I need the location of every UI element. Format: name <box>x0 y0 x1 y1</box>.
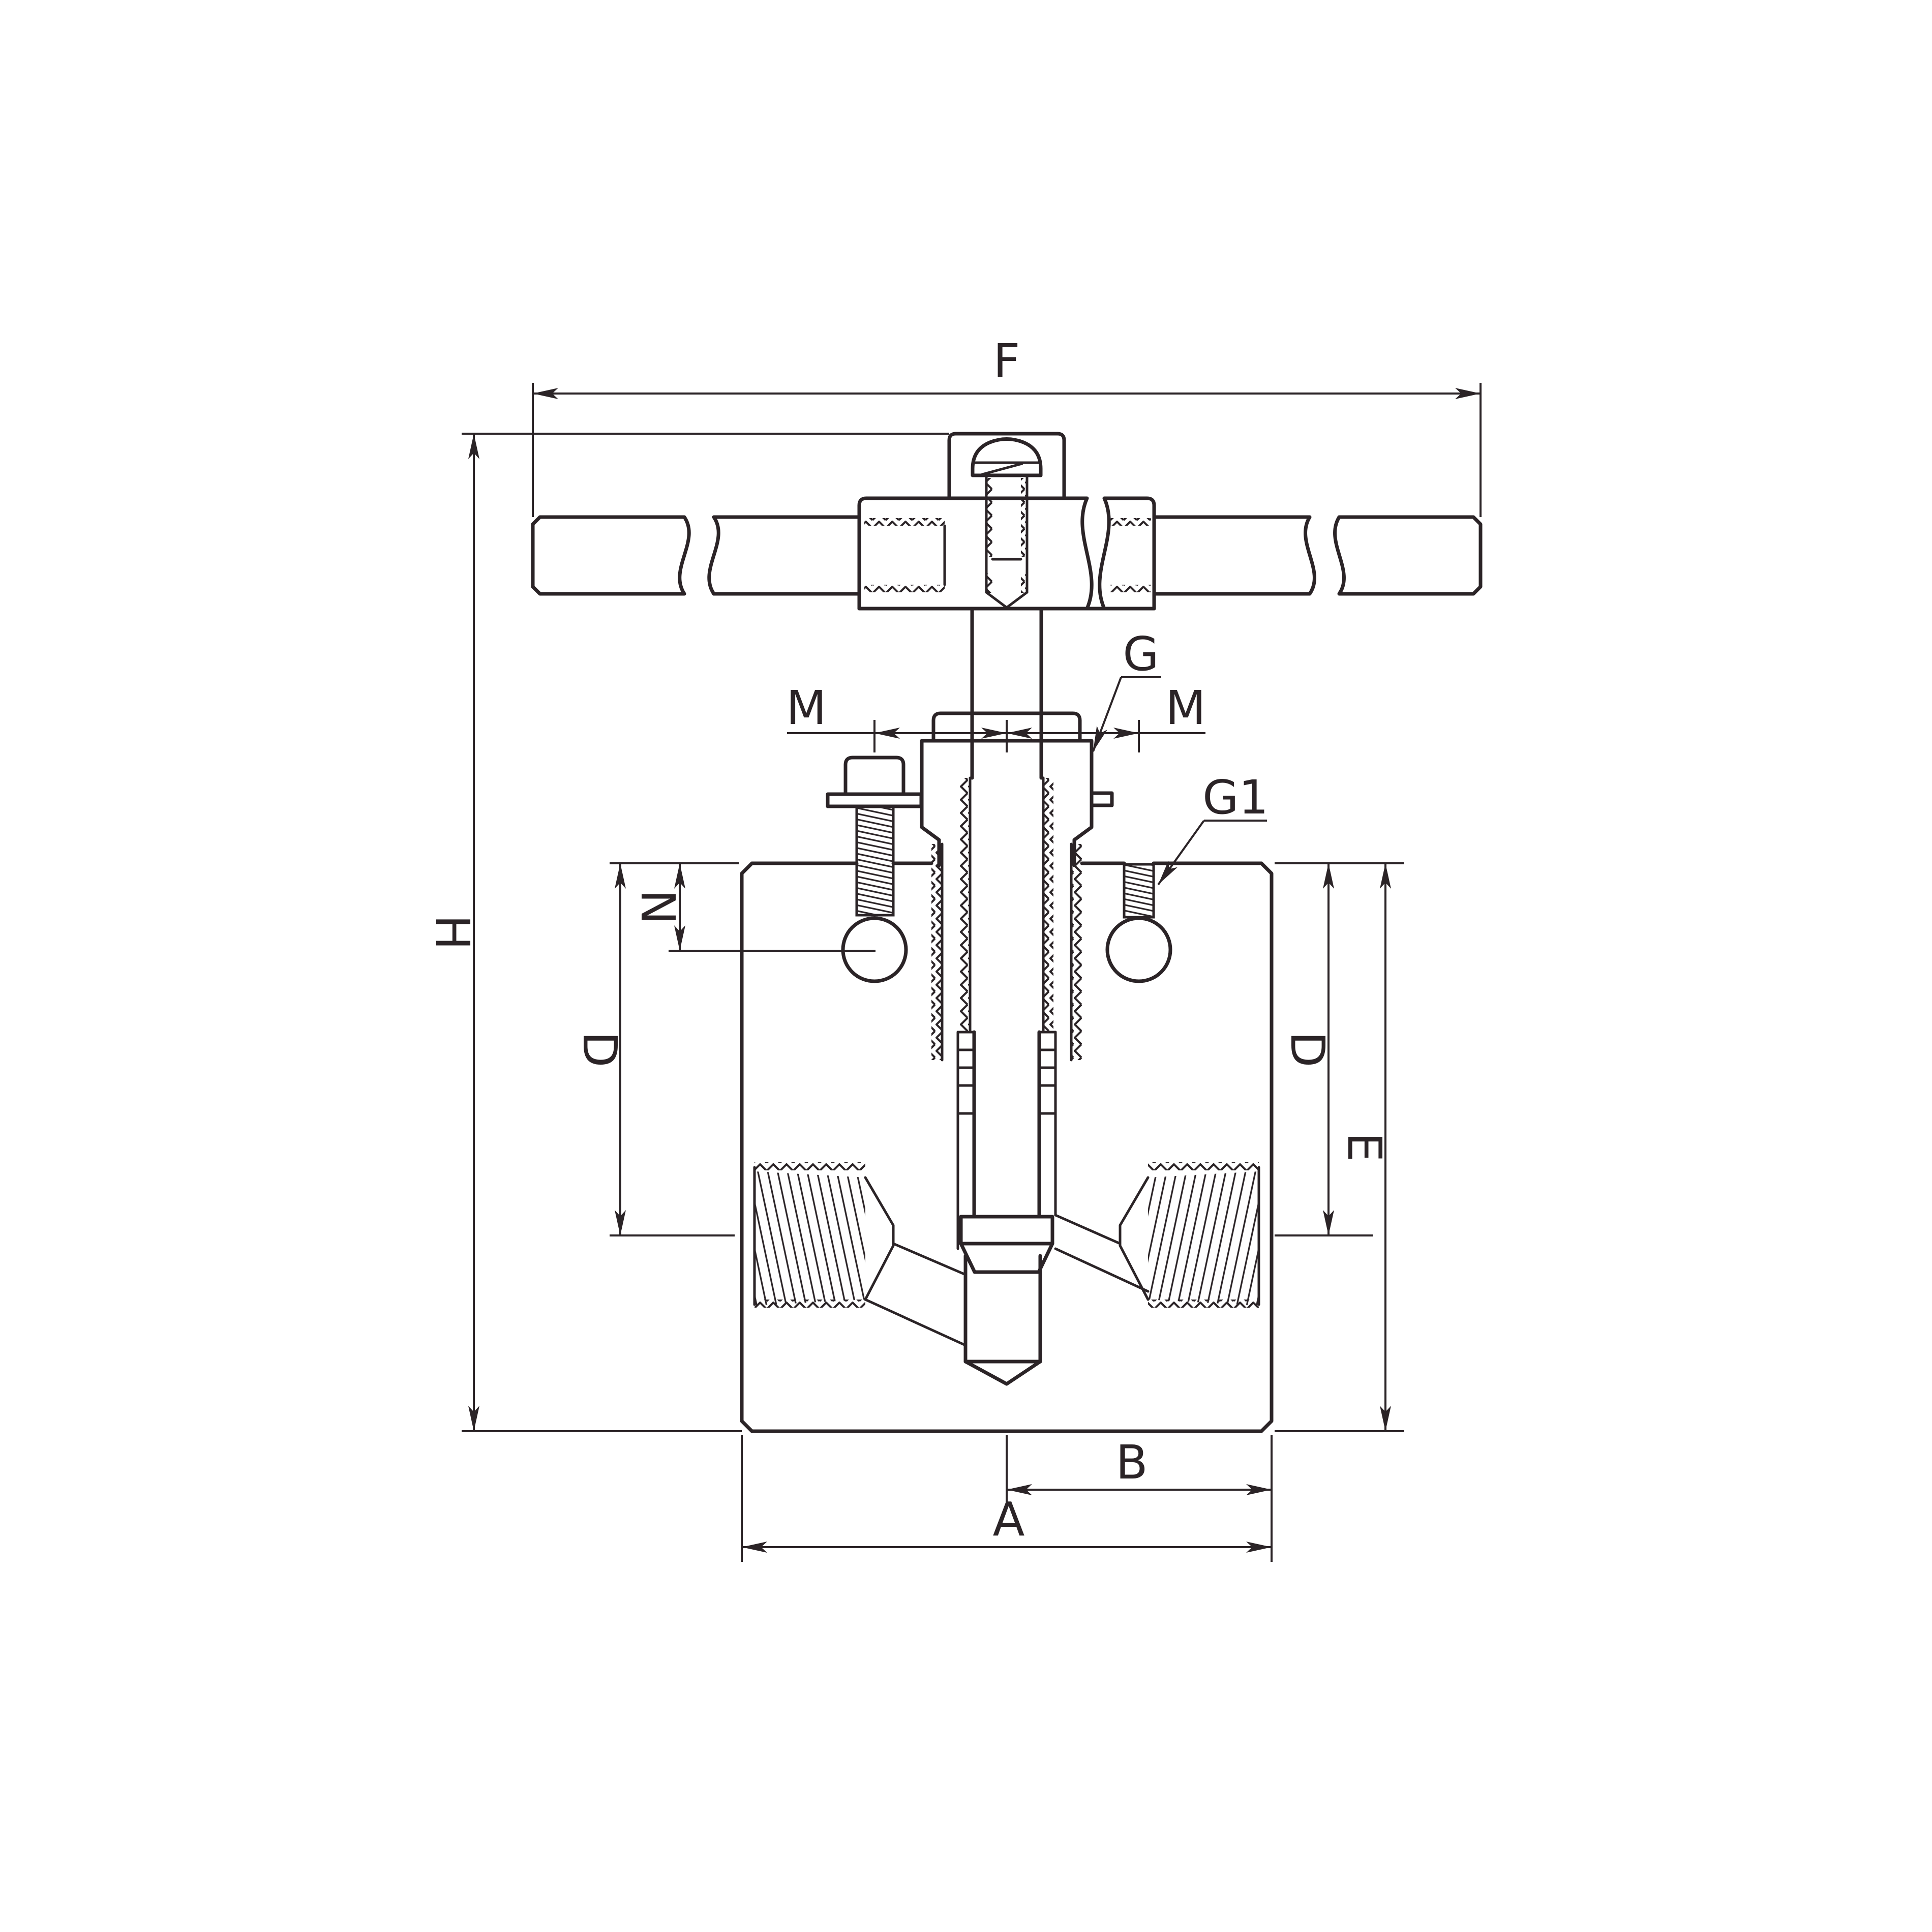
needle-assembly <box>961 1217 1052 1384</box>
passage-left-lower <box>865 1300 965 1345</box>
bolt-head <box>846 758 903 794</box>
port-thread-left <box>754 1162 893 1308</box>
handle-left-arm <box>533 517 689 594</box>
bonnet-thread-left <box>931 844 942 1060</box>
screw-thread-left-2 <box>985 573 992 593</box>
stem-thread-right <box>1043 778 1053 1032</box>
port-crest-top <box>754 1162 865 1170</box>
bonnet-thread-right <box>1071 844 1082 1060</box>
dim-label-m-left: M <box>786 681 826 735</box>
handle-hub-top <box>949 434 1064 498</box>
valve-body <box>742 863 1272 1431</box>
needle-tip <box>965 1362 1040 1384</box>
mount-bolt-left <box>828 758 921 981</box>
needle-valve-technical-drawing: F H M M G G1 N D D <box>0 0 1932 1932</box>
g1-leader <box>1158 821 1204 885</box>
handle-right-arm-inner <box>1154 517 1314 594</box>
bolt-washer <box>828 794 921 806</box>
port-thread-right <box>1120 1162 1259 1308</box>
bolt-shank-threads <box>857 806 893 915</box>
passage-right-upper <box>1055 1215 1120 1244</box>
stud-threads <box>1124 864 1154 917</box>
dim-label-d-left: D <box>572 1032 627 1068</box>
screw-point <box>986 592 1027 608</box>
dim-label-a: A <box>993 1492 1025 1547</box>
screw-thread-right <box>1021 478 1028 557</box>
handle-left-arm-inner <box>709 517 859 594</box>
bonnet-hex <box>922 741 1092 865</box>
stem-thread-left <box>960 778 970 1032</box>
valve-drawing-svg: F H M M G G1 N D D <box>0 0 1932 1932</box>
weep-ball-right <box>1107 918 1170 981</box>
screw-washer-slash <box>982 464 1022 474</box>
stem-bonnet-assembly <box>922 609 1112 1249</box>
body-outline <box>742 863 1272 1431</box>
arm-thread-right-bottom <box>1110 585 1151 592</box>
dim-label-h: H <box>425 915 479 950</box>
needle-taper-left <box>961 1244 975 1272</box>
dim-label-d-right: D <box>1280 1032 1335 1068</box>
handle-assembly <box>533 434 1481 609</box>
arm-thread-left-top <box>864 518 945 526</box>
dim-label-m-right: M <box>1165 681 1205 735</box>
bonnet-ear <box>1092 793 1112 805</box>
dim-label-b: B <box>1115 1435 1148 1490</box>
arm-thread-right-top <box>1110 518 1151 526</box>
dim-label-g: G <box>1123 627 1159 681</box>
g-leader <box>1093 677 1121 751</box>
screw-thread-right-2 <box>1021 573 1028 593</box>
port-thread-hatch <box>754 1171 865 1306</box>
dim-label-g1: G1 <box>1202 770 1269 825</box>
screw-thread-left <box>985 478 992 557</box>
handle-screw-head <box>973 439 1041 476</box>
port-cone-top <box>865 1178 893 1225</box>
passage-left-upper <box>893 1244 965 1275</box>
arm-thread-left-bottom <box>864 585 945 592</box>
port-cone-bottom <box>865 1246 893 1300</box>
needle-shoulder <box>961 1217 1052 1244</box>
dim-label-f: F <box>993 334 1020 388</box>
dim-label-n: N <box>630 890 685 925</box>
handle-right-arm <box>1335 517 1481 594</box>
dim-label-e: E <box>1337 1132 1392 1162</box>
